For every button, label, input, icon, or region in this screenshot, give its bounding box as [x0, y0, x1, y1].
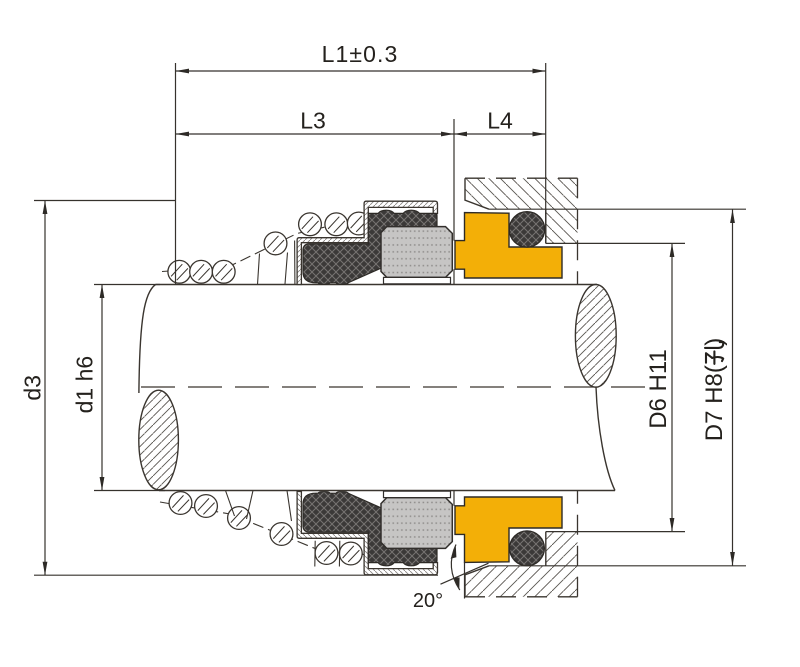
svg-text:L1±0.3: L1±0.3 — [322, 41, 399, 67]
svg-text:d1 h6: d1 h6 — [71, 356, 97, 414]
svg-text:d3: d3 — [20, 375, 46, 401]
svg-text:L3: L3 — [300, 108, 326, 134]
svg-text:L4: L4 — [487, 108, 513, 134]
svg-text:D6 H11: D6 H11 — [645, 349, 672, 429]
svg-text:D7 H8(: D7 H8( — [701, 365, 728, 441]
svg-text:20°: 20° — [413, 590, 443, 612]
svg-text:): ) — [701, 338, 728, 346]
